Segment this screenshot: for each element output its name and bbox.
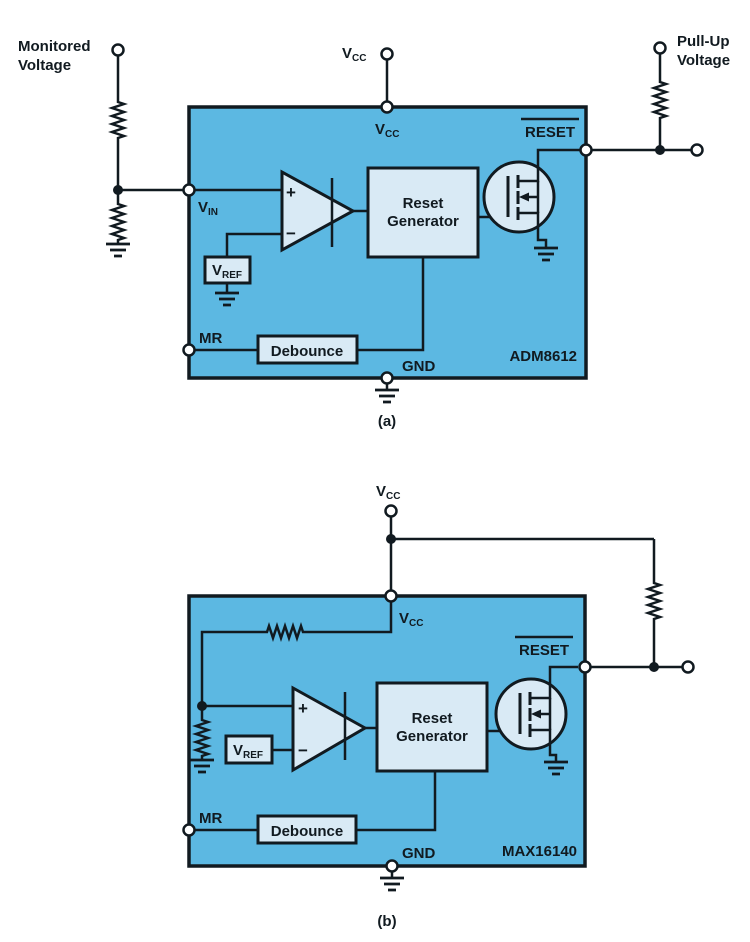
reset-generator-box-b [377, 683, 487, 771]
pullup-voltage-label-line2: Voltage [677, 52, 730, 69]
part-number-b: MAX16140 [502, 843, 577, 860]
monitored-voltage-label-line1: Monitored [18, 38, 91, 55]
pin-label-reset-b: RESET [519, 642, 569, 659]
reset-generator-label-line1-a: Reset [403, 195, 444, 212]
pin-mr-a [184, 345, 195, 356]
debounce-label-b: Debounce [271, 823, 344, 840]
pin-vcc-a [382, 102, 393, 113]
monitored-voltage-label-line2: Voltage [18, 57, 71, 74]
pullup-resistor-b [648, 539, 660, 667]
junction-dot [386, 534, 396, 544]
vcc-supply-label-b: VCC [376, 483, 400, 502]
junction-dot [655, 145, 665, 155]
resistor-divider-top-a [112, 57, 124, 191]
pin-label-gnd-a: GND [402, 358, 436, 375]
debounce-label-a: Debounce [271, 343, 344, 360]
terminal-reset-output-b [683, 662, 694, 673]
reset-generator-label-line2-b: Generator [396, 728, 468, 745]
junction-dot [649, 662, 659, 672]
circuit-figure: Monitored Voltage VCC Pull-Up Voltage [0, 0, 750, 942]
terminal-vcc-a [382, 49, 393, 60]
comparator-plus-sign-a: + [286, 183, 296, 202]
pullup-voltage-label-line1: Pull-Up [677, 33, 730, 50]
resistor-divider-bottom-a [112, 190, 124, 244]
ground-icon [375, 390, 399, 402]
debounce-block-a: Debounce [258, 336, 357, 363]
pin-label-reset-a: RESET [525, 124, 575, 141]
circuit-canvas: Monitored Voltage VCC Pull-Up Voltage [0, 0, 750, 942]
comparator-minus-sign-b: − [298, 741, 308, 760]
pin-vin-a [184, 185, 195, 196]
comparator-minus-sign-a: − [286, 224, 296, 243]
pin-label-gnd-b: GND [402, 845, 436, 862]
reset-generator-label-line1-b: Reset [412, 710, 453, 727]
pin-reset-b [580, 662, 591, 673]
vref-block-b: VREF [226, 736, 272, 763]
pin-gnd-b [387, 861, 398, 872]
debounce-block-b: Debounce [258, 816, 356, 843]
pin-gnd-a [382, 373, 393, 384]
part-number-a: ADM8612 [509, 348, 577, 365]
pullup-resistor-a [654, 55, 666, 151]
terminal-vcc-b [386, 506, 397, 517]
caption-b: (b) [377, 913, 396, 930]
junction-dot [113, 185, 123, 195]
comparator-plus-sign-b: + [298, 699, 308, 718]
terminal-reset-output-a [692, 145, 703, 156]
vref-block-a: VREF [205, 257, 250, 283]
diagram-b: VCC + − [184, 483, 694, 930]
reset-generator-label-line2-a: Generator [387, 213, 459, 230]
terminal-pullup-voltage [655, 43, 666, 54]
terminal-monitored-voltage [113, 45, 124, 56]
pin-label-mr-b: MR [199, 810, 222, 827]
pin-vcc-b [386, 591, 397, 602]
ground-icon [380, 878, 404, 890]
caption-a: (a) [378, 413, 396, 430]
reset-generator-block-a: Reset Generator [368, 168, 478, 257]
ground-icon [106, 244, 130, 256]
pin-mr-b [184, 825, 195, 836]
pin-reset-a [581, 145, 592, 156]
diagram-a: Monitored Voltage VCC Pull-Up Voltage [18, 33, 730, 430]
reset-generator-block-b: Reset Generator [377, 683, 487, 771]
pin-label-mr-a: MR [199, 330, 222, 347]
vcc-supply-label-a: VCC [342, 45, 366, 64]
